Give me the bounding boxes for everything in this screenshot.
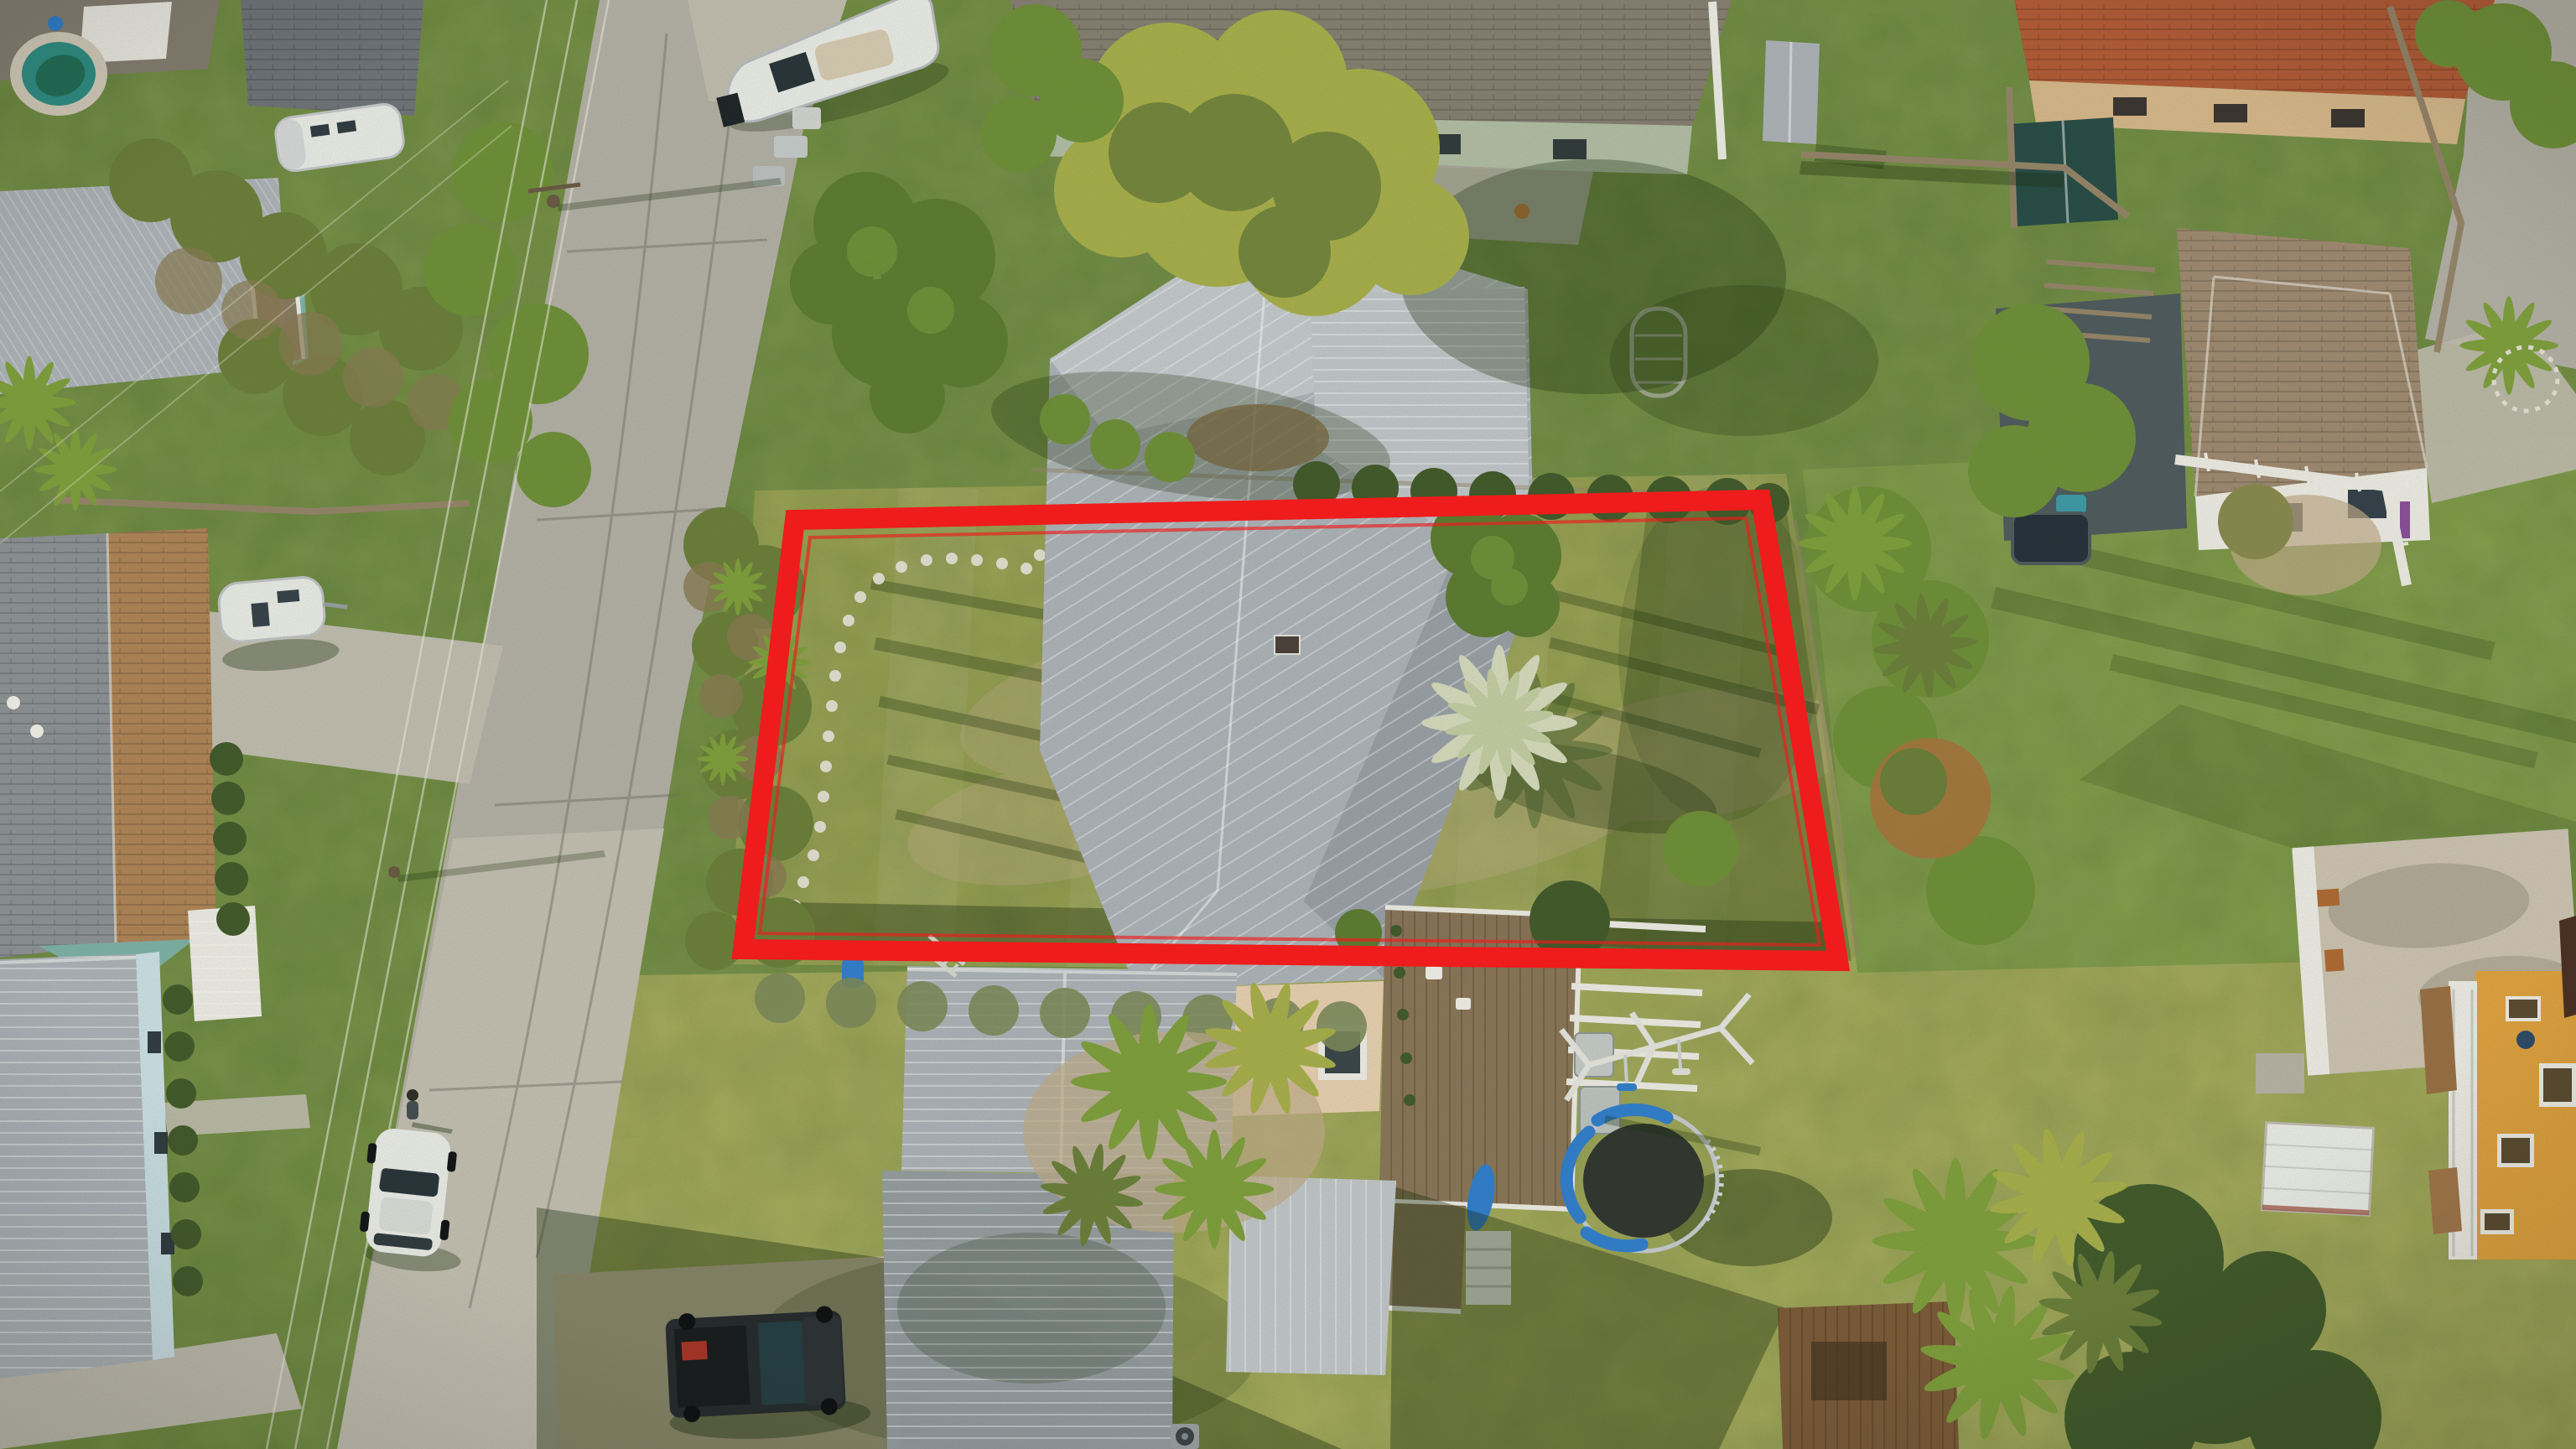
aerial-photo-canvas [0,0,2576,1449]
aerial-photo [0,0,2576,1449]
vignette [0,0,2576,1449]
